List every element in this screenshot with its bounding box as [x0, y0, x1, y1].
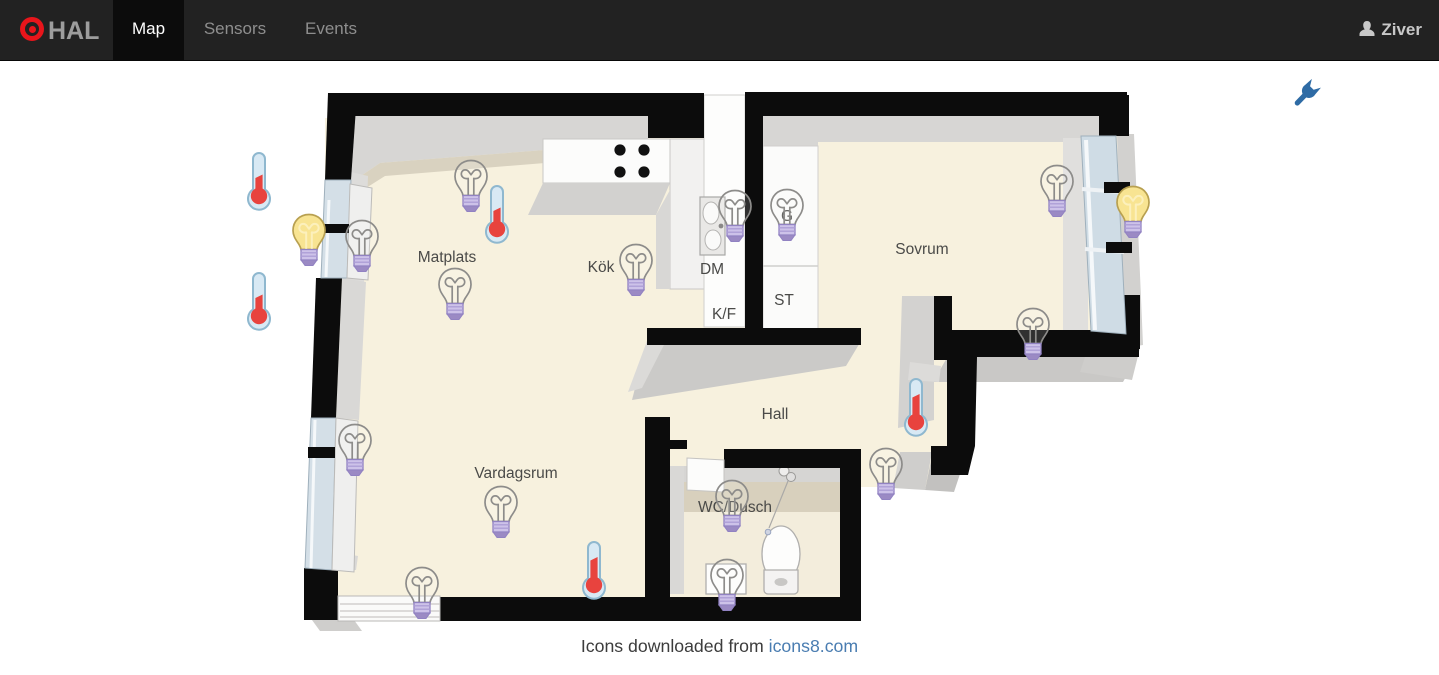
- svg-text:Matplats: Matplats: [418, 249, 477, 266]
- svg-text:K/F: K/F: [712, 306, 736, 323]
- svg-text:DM: DM: [700, 261, 724, 278]
- svg-text:Hall: Hall: [762, 406, 789, 423]
- svg-text:Kök: Kök: [588, 259, 615, 276]
- svg-text:Vardagsrum: Vardagsrum: [474, 465, 557, 482]
- svg-text:Sovrum: Sovrum: [895, 241, 948, 258]
- svg-text:ST: ST: [774, 292, 794, 309]
